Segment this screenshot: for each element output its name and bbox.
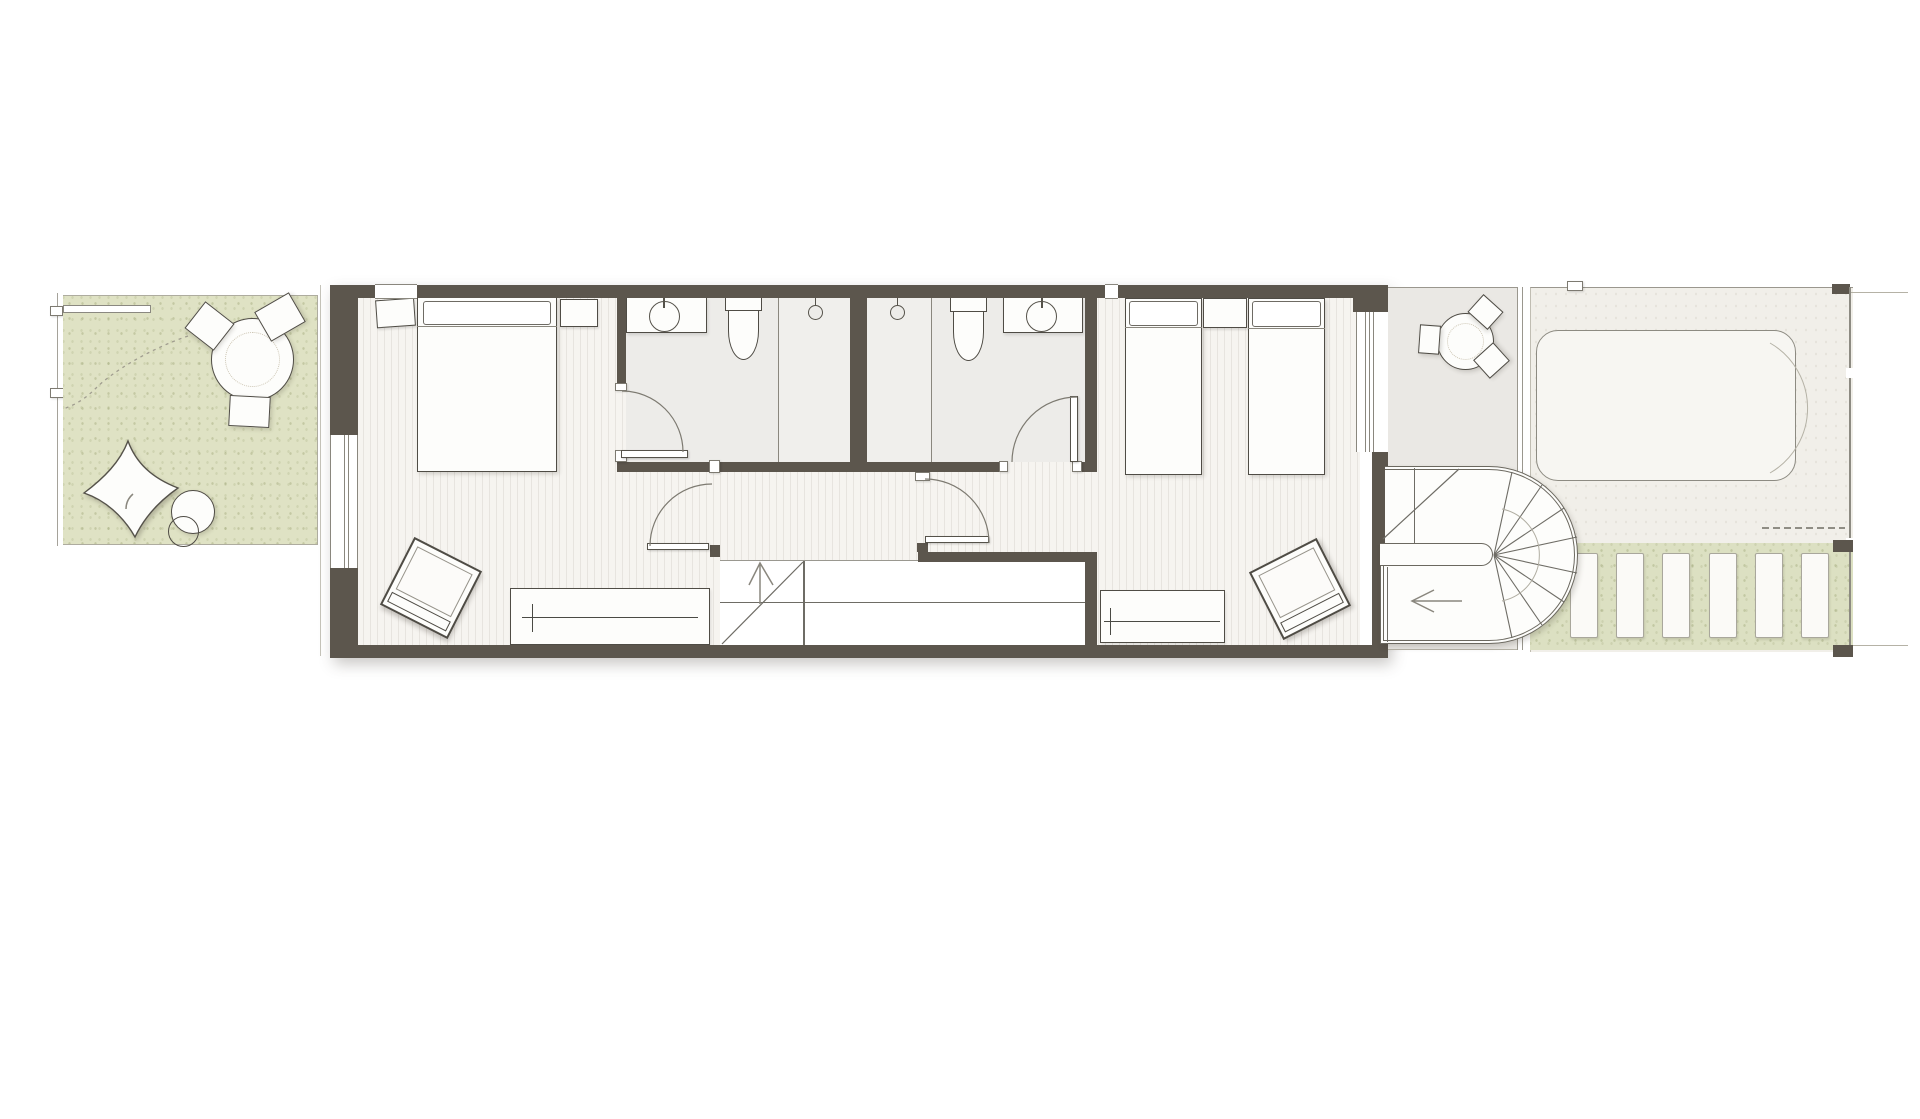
single-bed-pillow	[1252, 301, 1321, 327]
stair-tread	[804, 561, 805, 645]
deck-slat	[1662, 553, 1690, 638]
wall-bath1-left	[617, 298, 626, 388]
deck-slat	[1616, 553, 1644, 638]
boundary-marker	[50, 388, 64, 398]
shower-stem-bath1	[815, 297, 816, 306]
winder-stair-landing	[1380, 543, 1493, 566]
plot-line-mid	[320, 285, 321, 656]
wall-bath2-bottom-left	[867, 462, 1007, 472]
deck-slat	[1801, 553, 1829, 638]
boundary-marker	[50, 306, 63, 316]
boundary-right-stub	[1833, 645, 1853, 657]
boundary-right	[1849, 287, 1851, 652]
deck-top-notch	[1832, 284, 1850, 294]
doorframe-bedroom1-top	[709, 460, 720, 473]
boundary-right-gap	[1846, 368, 1854, 378]
nightstand	[375, 298, 416, 329]
garden-fence	[63, 305, 151, 313]
double-bed-headboard-line	[417, 326, 557, 327]
boundary-line-bottom-ext	[1853, 645, 1908, 646]
window-top-2	[1105, 284, 1118, 299]
single-bed-headboard-line	[1125, 327, 1202, 328]
wall-stair-top	[918, 552, 1097, 562]
garden-chair	[228, 395, 271, 428]
doorframe-bath2-right	[1072, 461, 1082, 472]
wall-right-corner	[1353, 285, 1388, 312]
doorframe-corridor-top	[915, 472, 930, 481]
pool	[1536, 330, 1796, 481]
toilet-tank	[725, 297, 762, 311]
main-staircase-treads	[803, 561, 1085, 645]
nightstand	[1203, 298, 1247, 328]
rail-tick	[1110, 608, 1111, 635]
shower-bath2	[867, 298, 932, 462]
stair-tread	[1387, 567, 1388, 642]
deck-slats	[1570, 553, 1829, 638]
doorframe-bath1-top	[615, 383, 627, 391]
floor-plan	[0, 0, 1920, 1119]
stair-tread	[1414, 468, 1415, 543]
wardrobe-right-ticks	[1110, 608, 1214, 635]
shower-stem-bath2	[897, 297, 898, 306]
deck-slat	[1755, 553, 1783, 638]
wall-stair-right	[1085, 562, 1097, 645]
toilet-bath1	[725, 297, 762, 361]
terrace-chair	[1418, 324, 1441, 354]
doorleaf-bath1	[621, 450, 688, 458]
toilet-tank	[950, 297, 987, 312]
nightstand	[560, 299, 598, 327]
single-bed-pillow	[1129, 301, 1198, 326]
double-bed-pillow	[423, 301, 551, 325]
window-left	[330, 435, 358, 568]
toilet-bath2	[950, 297, 987, 362]
shower-head-bath1	[808, 305, 823, 320]
grate-row	[1762, 527, 1845, 529]
boundary-right-stub	[1833, 540, 1853, 552]
plot-boundary-left	[57, 293, 58, 546]
shower-bath1	[778, 298, 850, 462]
wall-hinge-stub-corridor	[917, 543, 928, 552]
wall-left-upper	[330, 285, 358, 435]
wardrobe-left-ticks	[532, 604, 688, 632]
boundary-line-top-ext	[1850, 292, 1908, 293]
wall-hinge-stub-bedroom1	[710, 545, 720, 557]
doorleaf-corridor	[925, 536, 989, 543]
winder-top-treads	[1414, 468, 1488, 543]
toilet-bowl	[953, 311, 984, 361]
wall-bath1-bottom	[617, 462, 850, 472]
window-right	[1356, 312, 1374, 452]
doorframe-bath2-left	[999, 461, 1008, 472]
pouf-small	[168, 516, 199, 547]
doorleaf-bath2	[1070, 396, 1078, 462]
wall-bath-shared	[850, 298, 867, 472]
window-top-1	[375, 284, 417, 299]
wall-bath2-right	[1085, 285, 1097, 472]
winder-stair-wall	[1376, 455, 1385, 545]
drainage-grate	[1762, 527, 1845, 541]
main-staircase-divider	[720, 602, 1085, 603]
toilet-bowl	[728, 310, 759, 360]
deck-gate-marker	[1567, 281, 1583, 291]
doorleaf-bedroom1	[647, 543, 709, 550]
rail-tick	[532, 604, 533, 632]
wall-top	[330, 285, 1388, 298]
wall-bottom	[330, 645, 1388, 658]
deck-slat	[1709, 553, 1737, 638]
single-bed-headboard-line	[1248, 328, 1325, 329]
winder-bottom-treads	[1387, 567, 1484, 642]
shower-head-bath2	[890, 305, 905, 320]
